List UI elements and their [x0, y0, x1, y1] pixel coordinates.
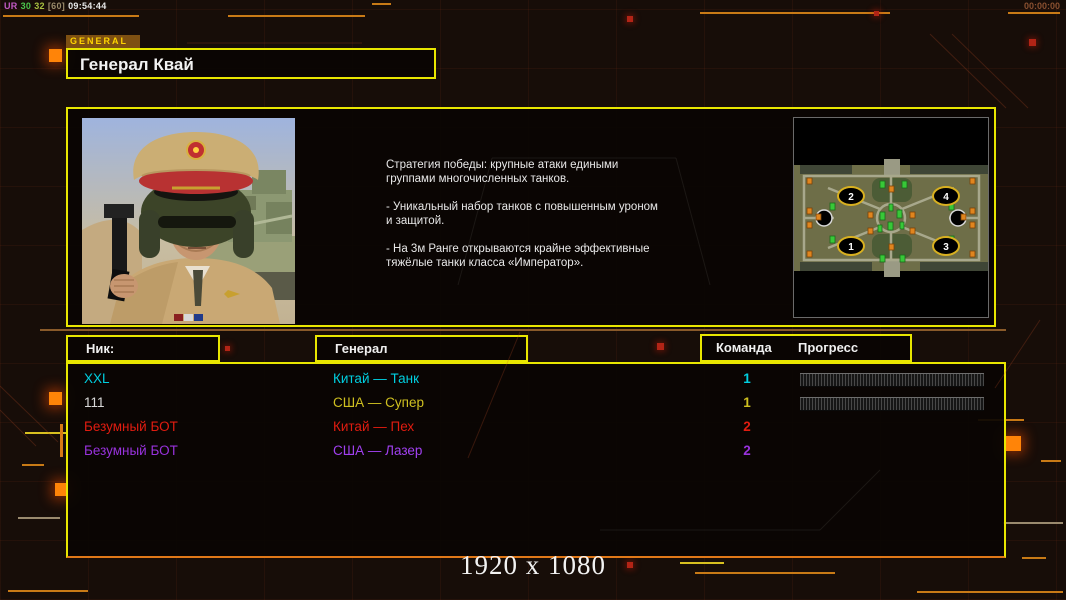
decor-square: [49, 392, 62, 405]
progress-bar: [800, 373, 984, 387]
player-nick: XXL: [84, 367, 110, 391]
table-row: Безумный БОТ США — Лазер 2: [68, 439, 1004, 463]
start-position-2: 2: [848, 192, 854, 203]
general-title-box: Генерал Квай: [66, 48, 436, 79]
general-tab: GENERAL: [66, 35, 140, 48]
decor-line: [1041, 460, 1061, 462]
decor-line: [8, 590, 88, 592]
decor-square: [627, 16, 633, 22]
header-team-progress: Команда Прогресс: [700, 334, 912, 362]
player-general: Китай — Танк: [333, 367, 419, 391]
player-general: США — Супер: [333, 391, 424, 415]
fps-stats-overlay: UR3032[60]09:54:44: [4, 1, 110, 11]
general-portrait-image: [82, 118, 295, 324]
header-nick-label: Ник:: [86, 337, 114, 360]
header-team-label: Команда: [716, 336, 772, 359]
decor-line: [1008, 12, 1060, 14]
description-paragraph: - На 3м Ранге открываются крайне эффекти…: [386, 242, 726, 270]
decor-square: [49, 49, 62, 62]
resolution-label: 1920 x 1080: [0, 550, 1066, 581]
players-table: XXL Китай — Танк 1 111 США — Супер 1 Без…: [66, 362, 1006, 558]
decor-line: [22, 464, 44, 466]
table-row: Безумный БОТ Китай — Пех 2: [68, 415, 1004, 439]
player-team: 2: [736, 439, 758, 463]
decor-line: [700, 12, 890, 14]
stats-segment: UR: [4, 1, 18, 11]
description-paragraph: - Уникальный набор танков с повышенным у…: [386, 200, 726, 228]
minimap-image: 2 4 1 3: [794, 118, 988, 317]
header-general-label: Генерал: [335, 337, 387, 360]
header-nick: Ник:: [66, 335, 220, 362]
page-title: Генерал Квай: [80, 55, 434, 75]
decor-line: [18, 517, 60, 519]
decor-square: [657, 343, 664, 350]
start-position-3: 3: [943, 242, 949, 253]
table-row: XXL Китай — Танк 1: [68, 367, 1004, 391]
match-timer: 00:00:00: [1024, 1, 1060, 11]
stats-segment: 32: [34, 1, 45, 11]
decor-line: [1003, 522, 1063, 524]
decor-line: [40, 329, 1006, 331]
description-paragraph: Стратегия победы: крупные атаки едиными …: [386, 158, 726, 186]
strategy-description: Стратегия победы: крупные атаки едиными …: [386, 158, 726, 284]
player-general: США — Лазер: [333, 439, 422, 463]
stats-segment: 30: [21, 1, 32, 11]
briefing-screen: UR3032[60]09:54:44 00:00:00 GENERAL Гене…: [0, 0, 1066, 600]
player-nick: Безумный БОТ: [84, 415, 178, 439]
decor-line: [228, 15, 365, 17]
general-info-panel: Стратегия победы: крупные атаки едиными …: [66, 107, 996, 327]
decor-square: [874, 11, 879, 16]
decor-line: [60, 424, 63, 457]
table-row: 111 США — Супер 1: [68, 391, 1004, 415]
start-position-1: 1: [848, 242, 854, 253]
player-nick: 111: [84, 391, 105, 415]
general-portrait: [82, 118, 295, 324]
map-preview: 2 4 1 3: [793, 117, 989, 318]
stats-segment: 09:54:44: [68, 1, 106, 11]
start-position-4: 4: [943, 192, 949, 203]
player-team: 2: [736, 415, 758, 439]
decor-square: [1006, 436, 1021, 451]
decor-line: [372, 3, 391, 5]
decor-square: [1029, 39, 1036, 46]
header-general: Генерал: [315, 335, 528, 362]
decor-line: [917, 591, 1063, 593]
header-progress-label: Прогресс: [798, 336, 858, 359]
decor-line: [3, 15, 139, 17]
player-team: 1: [736, 367, 758, 391]
stats-segment: [60]: [48, 1, 65, 11]
decor-square: [225, 346, 230, 351]
player-team: 1: [736, 391, 758, 415]
player-general: Китай — Пех: [333, 415, 414, 439]
player-nick: Безумный БОТ: [84, 439, 178, 463]
progress-bar: [800, 397, 984, 411]
